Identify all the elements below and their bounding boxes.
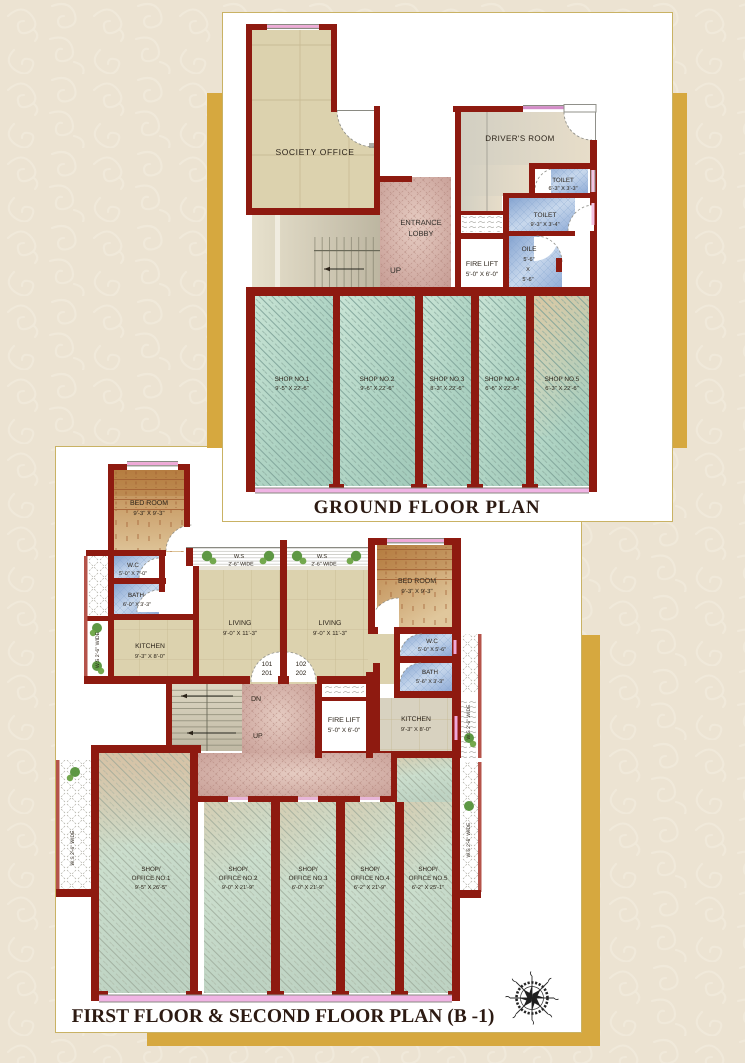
svg-text:W.C: W.C [127, 562, 139, 569]
svg-text:9'-3" X 8'-0": 9'-3" X 8'-0" [401, 726, 431, 733]
svg-text:6'-2" X 21'-9": 6'-2" X 21'-9" [354, 885, 386, 891]
svg-text:FIRST FLOOR & SECOND FLOOR PL: FIRST FLOOR & SECOND FLOOR PLAN (B -1) [72, 1006, 495, 1027]
svg-text:9'-0" X 21'-9": 9'-0" X 21'-9" [222, 885, 254, 891]
svg-text:W.S 2'-6" WIDE: W.S 2'-6" WIDE [70, 830, 76, 866]
svg-text:BED ROOM: BED ROOM [130, 500, 168, 507]
svg-text:5'-0" X 5'-6": 5'-0" X 5'-6" [418, 647, 446, 653]
svg-text:W.S 2'-6" WIDE: W.S 2'-6" WIDE [466, 704, 472, 740]
svg-text:OILE: OILE [522, 246, 537, 253]
svg-text:5'-6" X 3'-3": 5'-6" X 3'-3" [416, 679, 444, 685]
svg-text:9'-3" X 8'-0": 9'-3" X 8'-0" [135, 653, 165, 660]
svg-text:BATH: BATH [422, 669, 438, 676]
svg-text:SHOP NO.3: SHOP NO.3 [430, 376, 465, 383]
svg-text:6'-0" X 21'-9": 6'-0" X 21'-9" [292, 885, 324, 891]
svg-text:UP: UP [390, 266, 401, 275]
svg-text:9'-5" X 22'-6": 9'-5" X 22'-6" [275, 385, 308, 392]
svg-text:ENTRANCE: ENTRANCE [400, 218, 441, 227]
svg-text:W.S: W.S [317, 554, 328, 560]
svg-text:W.S: W.S [234, 554, 245, 560]
svg-text:SHOP NO.5: SHOP NO.5 [545, 376, 580, 383]
svg-text:8'-3" X 22'-6": 8'-3" X 22'-6" [430, 385, 463, 392]
svg-text:DN: DN [251, 696, 261, 703]
svg-text:W.C: W.C [426, 638, 438, 645]
svg-text:5'-0" X 6'-0": 5'-0" X 6'-0" [328, 727, 360, 734]
svg-text:KITCHEN: KITCHEN [135, 643, 165, 650]
svg-text:SHOP NO.4: SHOP NO.4 [485, 376, 520, 383]
svg-text:201: 201 [262, 670, 273, 677]
svg-text:SHOP/: SHOP/ [360, 866, 380, 873]
svg-text:SHOP/: SHOP/ [418, 866, 438, 873]
svg-text:FIRE LIFT: FIRE LIFT [466, 261, 499, 268]
svg-text:KITCHEN: KITCHEN [401, 716, 431, 723]
svg-text:DRIVER'S ROOM: DRIVER'S ROOM [485, 134, 554, 143]
svg-text:LIVING: LIVING [319, 620, 342, 627]
svg-text:OFFICE NO.3: OFFICE NO.3 [289, 875, 328, 882]
svg-text:9'-6" X 22'-6": 9'-6" X 22'-6" [360, 385, 393, 392]
svg-text:6'-6" X 22'-6": 6'-6" X 22'-6" [485, 385, 518, 392]
svg-text:9'-0" X 11'-3": 9'-0" X 11'-3" [223, 630, 257, 637]
svg-text:OFFICE NO.4: OFFICE NO.4 [351, 875, 390, 882]
svg-text:W.S 2'-6" WIDE: W.S 2'-6" WIDE [95, 631, 101, 668]
svg-text:5'-0" X 6'-0": 5'-0" X 6'-0" [466, 271, 498, 278]
svg-text:101: 101 [262, 661, 273, 668]
svg-text:SHOP/: SHOP/ [141, 866, 161, 873]
svg-text:TOILET: TOILET [552, 177, 574, 184]
svg-text:OFFICE NO.1: OFFICE NO.1 [132, 875, 171, 882]
svg-text:102: 102 [296, 661, 307, 668]
svg-text:6'-0" X 3'-3": 6'-0" X 3'-3" [123, 602, 151, 608]
svg-text:9'-3" X 9'-3": 9'-3" X 9'-3" [401, 588, 432, 595]
svg-text:202: 202 [296, 670, 307, 677]
svg-text:TOILET: TOILET [534, 212, 557, 219]
svg-text:W.S 2'-6" WIDE: W.S 2'-6" WIDE [466, 822, 472, 858]
svg-text:SHOP NO.1: SHOP NO.1 [275, 376, 310, 383]
svg-text:BATH: BATH [128, 592, 144, 599]
svg-text:SHOP NO.2: SHOP NO.2 [360, 376, 395, 383]
svg-text:9'-3" X 3'-4": 9'-3" X 3'-4" [530, 222, 559, 228]
svg-text:9'-0" X 11'-3": 9'-0" X 11'-3" [313, 630, 347, 637]
svg-text:6'-2" X 25'-1": 6'-2" X 25'-1" [412, 885, 444, 891]
svg-text:FIRE LIFT: FIRE LIFT [328, 717, 361, 724]
svg-text:9'-3" X 9'-3": 9'-3" X 9'-3" [133, 510, 164, 517]
svg-text:5'-0" X 7'-0": 5'-0" X 7'-0" [119, 571, 147, 577]
svg-text:LIVING: LIVING [229, 620, 252, 627]
svg-text:SHOP/: SHOP/ [228, 866, 248, 873]
svg-text:GROUND FLOOR PLAN: GROUND FLOOR PLAN [314, 497, 541, 518]
svg-text:BED ROOM: BED ROOM [398, 578, 436, 585]
svg-text:X: X [526, 267, 530, 273]
svg-text:SOCIETY OFFICE: SOCIETY OFFICE [275, 147, 354, 157]
svg-text:OFFICE NO.5: OFFICE NO.5 [409, 875, 448, 882]
svg-text:5'-6": 5'-6" [523, 257, 534, 263]
svg-text:5'-6": 5'-6" [522, 277, 533, 283]
svg-text:9'-5" X 26'-5": 9'-5" X 26'-5" [135, 885, 167, 891]
svg-text:6'-3" X 3'-3": 6'-3" X 3'-3" [548, 186, 577, 192]
svg-text:6'-3" X 22'-6": 6'-3" X 22'-6" [545, 385, 578, 392]
svg-text:LOBBY: LOBBY [408, 229, 433, 238]
svg-text:OFFICE NO.2: OFFICE NO.2 [219, 875, 258, 882]
svg-text:SHOP/: SHOP/ [298, 866, 318, 873]
svg-text:UP: UP [253, 733, 263, 740]
